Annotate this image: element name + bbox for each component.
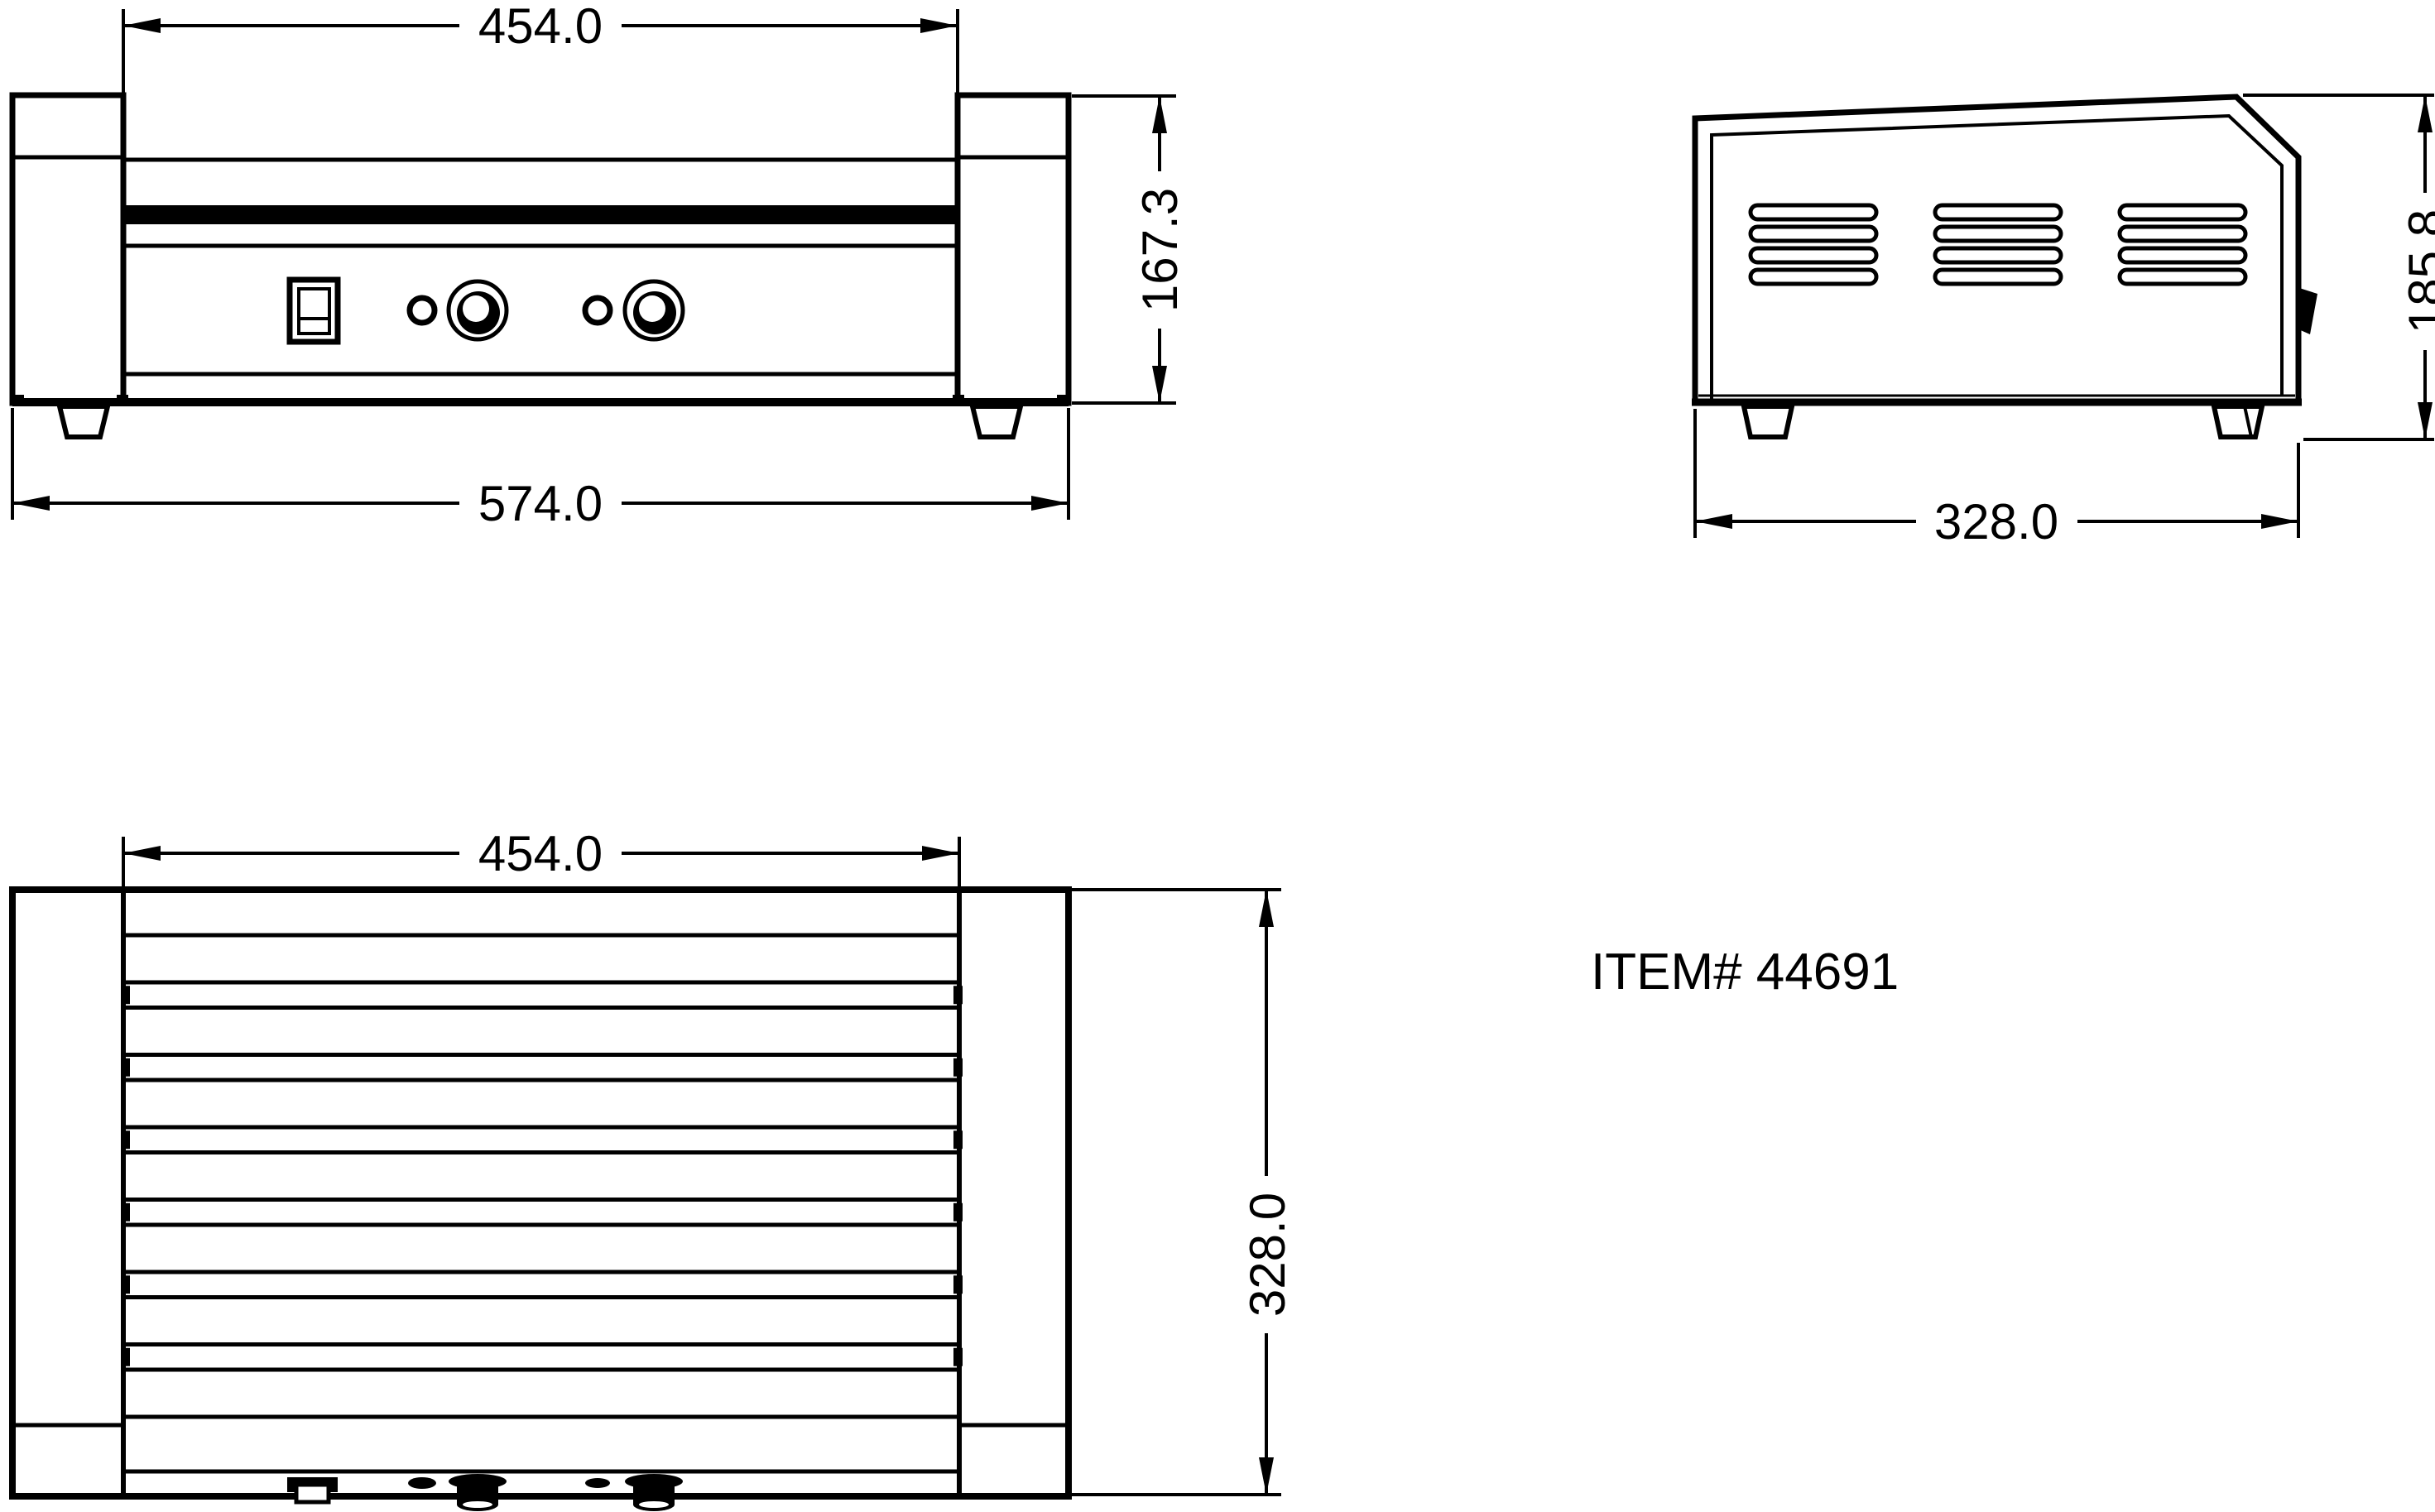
control-knob-2 <box>625 281 683 339</box>
knob-face <box>639 295 665 322</box>
power-switch <box>290 280 338 342</box>
switch-tab-top <box>296 1485 329 1502</box>
dim-top-depth: 328.0 <box>1069 890 1295 1495</box>
arrowhead-down <box>2418 402 2433 439</box>
top-indicator-light-1 <box>408 1477 436 1489</box>
arrowhead-left <box>123 18 161 33</box>
indicator-light-1 <box>410 298 435 323</box>
roller-axle-nub-left <box>121 1130 130 1149</box>
roller-axle-nub-left <box>121 986 130 1004</box>
arrowhead-down <box>1259 1457 1274 1495</box>
arrowhead-right <box>922 846 959 861</box>
vent-slot <box>2120 248 2245 262</box>
dim-label: 454.0 <box>478 826 603 881</box>
front-left-end-cap <box>12 95 123 403</box>
arrowhead-up <box>1152 96 1167 133</box>
technical-drawing-page: 454.0 574.0 167.3 <box>0 0 2435 1512</box>
dim-label: 328.0 <box>1240 1193 1295 1317</box>
roller-axle-nub-right <box>953 986 963 1004</box>
knob-face <box>463 295 489 322</box>
vent-slot <box>1935 248 2061 262</box>
dim-label: 167.3 <box>1132 188 1188 312</box>
power-switch-rocker <box>299 289 329 334</box>
roller-axle-nub-left <box>121 1275 130 1294</box>
vent-slot <box>1935 205 2061 219</box>
vent-slot <box>2120 205 2245 219</box>
top-knob-1 <box>449 1474 507 1511</box>
vent-slot <box>2120 227 2245 241</box>
vent-slot <box>1751 205 1876 219</box>
vent-slot <box>2120 270 2245 284</box>
front-right-end-cap <box>958 95 1069 403</box>
arrowhead-up <box>2418 95 2433 132</box>
arrowhead-right <box>920 18 958 33</box>
side-left-foot <box>1744 406 1792 437</box>
front-base-tab <box>12 395 24 402</box>
side-latch <box>2297 287 2317 334</box>
front-base-tab <box>1057 395 1069 402</box>
dim-label: 328.0 <box>1934 494 2058 550</box>
vent-slot <box>1751 270 1876 284</box>
arrowhead-left <box>12 496 50 511</box>
roller-axle-nub-left <box>121 1203 130 1222</box>
front-base-tab <box>117 395 128 402</box>
front-view: 454.0 574.0 167.3 <box>12 0 1188 531</box>
arrowhead-right <box>1031 496 1069 511</box>
front-base-tab <box>953 395 964 402</box>
front-right-foot <box>973 406 1021 437</box>
roller-axle-nub-right <box>953 1275 963 1294</box>
roller-axle-nub-right <box>953 1348 963 1366</box>
front-roller-band <box>123 205 958 224</box>
vent-slot <box>1935 227 2061 241</box>
roller-axle-nub-left <box>121 1348 130 1366</box>
roller-axle-nub-right <box>953 1203 963 1222</box>
dim-front-height: 167.3 <box>1072 96 1188 403</box>
roller-axle-nub-right <box>953 1130 963 1149</box>
top-knob-2 <box>625 1474 683 1511</box>
dim-label: 574.0 <box>478 476 603 531</box>
drawing-canvas: 454.0 574.0 167.3 <box>0 0 2435 1512</box>
dim-label: 454.0 <box>478 0 603 54</box>
arrowhead-left <box>1695 514 1732 529</box>
vent-slot <box>1751 227 1876 241</box>
knob-skirt-bottom-face <box>639 1501 669 1508</box>
dim-front-roller-width: 454.0 <box>123 0 958 95</box>
side-view: 328.0 185.8 <box>1692 95 2435 550</box>
vent-slot <box>1935 270 2061 284</box>
top-power-switch <box>287 1477 338 1502</box>
vent-slot <box>1751 248 1876 262</box>
arrowhead-down <box>1152 366 1167 403</box>
top-indicator-light-2 <box>585 1478 610 1488</box>
dim-label: 185.8 <box>2399 209 2435 334</box>
front-left-foot <box>60 406 108 437</box>
arrowhead-up <box>1259 890 1274 927</box>
arrowhead-left <box>123 846 161 861</box>
top-view: 454.0 328.0 <box>12 826 1295 1511</box>
roller-axle-nub-right <box>953 1058 963 1077</box>
dim-top-roller-width: 454.0 <box>123 826 959 890</box>
knob-skirt-bottom-face <box>463 1501 492 1508</box>
item-number-label: ITEM# 44691 <box>1591 943 1899 1001</box>
arrowhead-right <box>2261 514 2298 529</box>
roller-axle-nub-left <box>121 1058 130 1077</box>
dim-front-overall-width: 574.0 <box>12 408 1069 531</box>
indicator-light-2 <box>585 298 610 323</box>
side-right-foot <box>2214 406 2262 437</box>
control-knob-1 <box>449 281 507 339</box>
